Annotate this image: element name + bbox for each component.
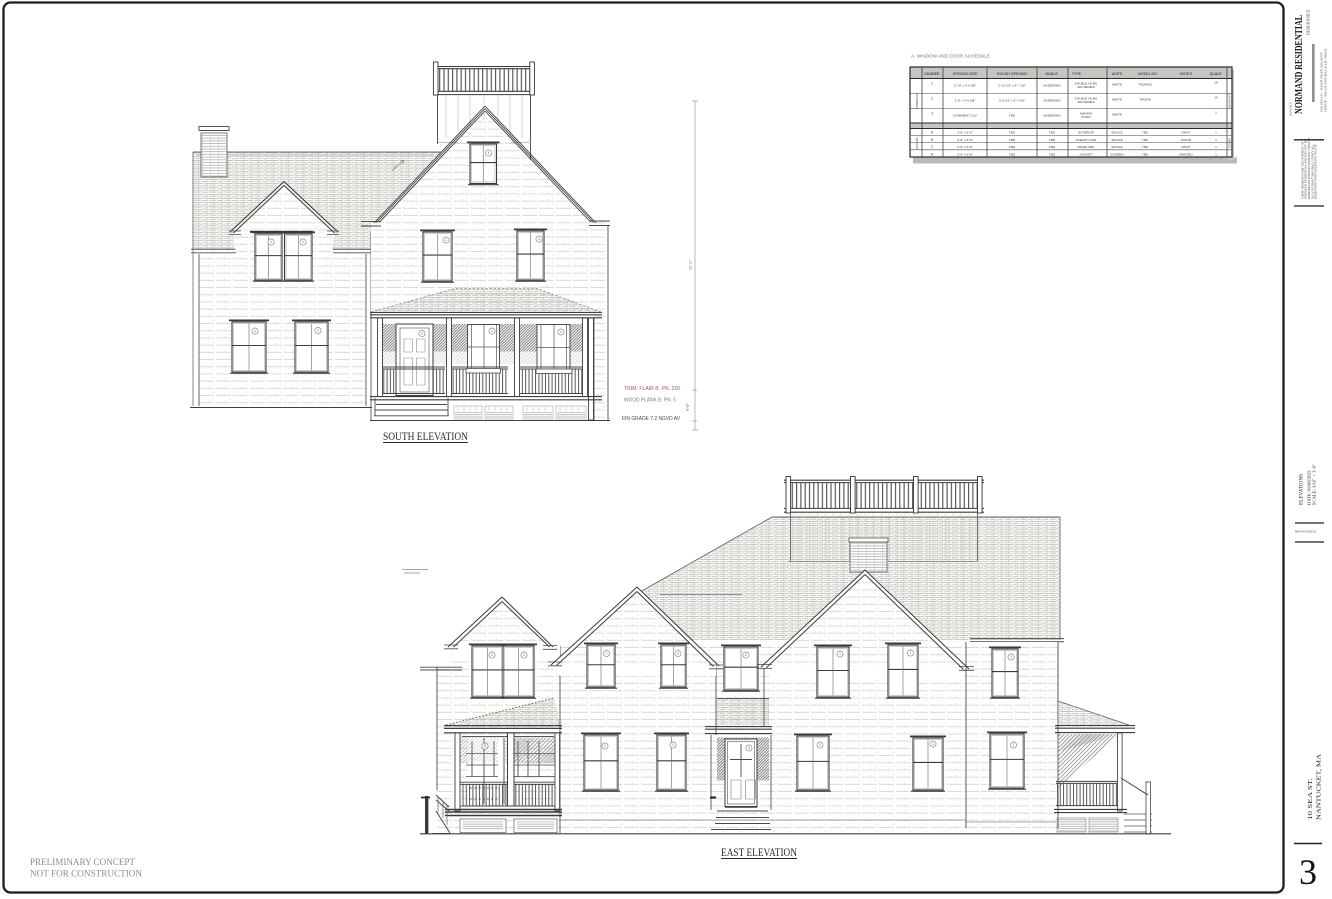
svg-text:NUMBER: NUMBER (924, 72, 940, 76)
svg-text:SCALE: 3/16″ = 1′-0″: SCALE: 3/16″ = 1′-0″ (1312, 464, 1317, 505)
svg-text:3'-0" x 6'-8": 3'-0" x 6'-8" (957, 131, 973, 135)
svg-text:TBD: TBD (1049, 138, 1056, 142)
svg-text:2: 2 (931, 97, 933, 101)
svg-text:1: 1 (1215, 138, 1217, 142)
svg-text:NOTES: NOTES (1180, 72, 1193, 76)
svg-text:D: D (484, 744, 487, 748)
svg-text:TBD: TBD (1009, 145, 1016, 149)
svg-text:TRIM: FLAIR B. PN. 220: TRIM: FLAIR B. PN. 220 (624, 386, 680, 392)
svg-text:1: 1 (1215, 152, 1217, 156)
svg-text:UNITS: UNITS (1112, 72, 1123, 76)
svg-text:2'-4" x 6'-8": 2'-4" x 6'-8" (957, 152, 973, 156)
svg-text:1: 1 (254, 329, 256, 333)
svg-text:3: 3 (1299, 852, 1317, 892)
svg-text:TBD: TBD (1142, 152, 1149, 156)
svg-text:2'-8" x 6'-8": 2'-8" x 6'-8" (957, 138, 973, 142)
svg-text:QUANT.: QUANT. (1210, 72, 1223, 76)
svg-text:MODEL NO.: MODEL NO. (1138, 72, 1158, 76)
svg-text:POCKET: POCKET (1080, 152, 1093, 156)
svg-text:1: 1 (270, 240, 272, 244)
svg-text:400 SERIES: 400 SERIES (1077, 100, 1094, 104)
svg-text:1: 1 (672, 743, 674, 747)
svg-text:1: 1 (604, 744, 606, 748)
svg-text:1: 1 (1215, 145, 1217, 149)
svg-text:PRELIMINARY CONCEPT: PRELIMINARY CONCEPT (30, 857, 135, 868)
svg-text:DESIGN BUILD: DESIGN BUILD (1307, 10, 1311, 35)
svg-text:4: 4 (488, 151, 490, 155)
svg-text:NOT FOR CONSTRUCTION: NOT FOR CONSTRUCTION (30, 869, 142, 880)
svg-text:WINDOWS: WINDOWS (1228, 93, 1232, 108)
svg-text:10: 10 (1214, 96, 1218, 100)
svg-text:FIN GRADE 7.2 NGVD AV: FIN GRADE 7.2 NGVD AV (622, 416, 680, 422)
svg-text:EAST ELEVATION: EAST ELEVATION (721, 847, 798, 859)
svg-text:3: 3 (931, 112, 933, 116)
svg-text:PAINT: PAINT (1182, 131, 1191, 135)
svg-text:RFP 4/5/AD/23: RFP 4/5/AD/23 (1295, 530, 1317, 534)
svg-text:NORMAND RESIDENTIAL: NORMAND RESIDENTIAL (1293, 15, 1305, 114)
svg-text:2'-6" x 6'-8": 2'-6" x 6'-8" (957, 145, 973, 149)
svg-text:PAINT: PAINT (1182, 145, 1191, 149)
svg-text:ROUGH OPENING: ROUGH OPENING (997, 72, 1027, 76)
svg-text:1: 1 (538, 237, 540, 241)
svg-text:SOUTH ELEVATION: SOUTH ELEVATION (383, 429, 468, 443)
svg-text:2: 2 (745, 653, 747, 657)
svg-text:9′-6″: 9′-6″ (685, 403, 690, 411)
svg-text:TBD: TBD (1049, 145, 1056, 149)
svg-text:1: 1 (910, 651, 912, 655)
svg-text:WOOD PLANK B. PN. 5: WOOD PLANK B. PN. 5 (624, 398, 676, 404)
svg-text:WHITE: WHITE (1112, 98, 1122, 102)
svg-text:1: 1 (819, 743, 821, 747)
svg-text:EXTERIOR: EXTERIOR (1078, 131, 1095, 135)
svg-text:1: 1 (560, 330, 562, 334)
svg-text:12: 12 (393, 165, 397, 169)
svg-text:SINGLE: SINGLE (1111, 145, 1122, 149)
svg-text:3: 3 (748, 746, 750, 750)
svg-text:SINGLE: SINGLE (1111, 131, 1122, 135)
svg-text:DOORS: DOORS (1228, 138, 1232, 149)
svg-text:TBD: TBD (1142, 138, 1149, 142)
svg-text:2: 2 (677, 652, 679, 656)
svg-text:1: 1 (932, 742, 934, 746)
svg-text:TBD: TBD (1142, 145, 1149, 149)
svg-text:FIXED: FIXED (1081, 115, 1091, 119)
svg-text:1: 1 (445, 238, 447, 242)
svg-text:WINDOWS: WINDOWS (915, 93, 919, 110)
svg-text:TYPE: TYPE (1072, 72, 1082, 76)
svg-text:TBD: TBD (1009, 138, 1016, 142)
svg-text:FRENCH PAIR: FRENCH PAIR (1076, 138, 1098, 142)
svg-text:TBD: TBD (1009, 114, 1016, 118)
svg-text:KINSALE: KINSALE (1289, 102, 1293, 116)
svg-text:TBD: TBD (1049, 131, 1056, 135)
svg-text:2'-6" x 3'-6 5/8": 2'-6" x 3'-6 5/8" (955, 99, 976, 103)
svg-text:1: 1 (491, 329, 493, 333)
svg-text:400 SERIES: 400 SERIES (1077, 85, 1094, 89)
svg-text:28: 28 (1214, 81, 1218, 85)
svg-text:1: 1 (302, 240, 304, 244)
svg-text:NANTUCKET, MA: NANTUCKET, MA (1316, 754, 1323, 820)
svg-text:WHITE: WHITE (1112, 113, 1122, 117)
svg-text:ELEVATIONS: ELEVATIONS (1299, 474, 1305, 505)
svg-text:TBD: TBD (1009, 152, 1016, 156)
svg-text:1: 1 (1013, 743, 1015, 747)
svg-text:OPENING SIZE: OPENING SIZE (953, 72, 979, 76)
svg-text:TBD: TBD (1142, 131, 1149, 135)
svg-text:DOORS: DOORS (915, 137, 919, 149)
svg-text:ANDERSEN: ANDERSEN (1043, 99, 1060, 103)
svg-text:2: 2 (421, 332, 423, 336)
svg-text:TW24410: TW24410 (1138, 83, 1152, 87)
svg-text:2'-6 1/2" x 3'-7 1/8": 2'-6 1/2" x 3'-7 1/8" (999, 99, 1025, 103)
svg-text:2: 2 (1215, 111, 1217, 115)
svg-text:ANDERSEN: ANDERSEN (1043, 84, 1060, 88)
svg-text:1: 1 (1215, 131, 1217, 135)
svg-text:MANUF.: MANUF. (1045, 72, 1058, 76)
svg-text:ANDERSEN: ANDERSEN (1043, 114, 1060, 118)
svg-text:32′-6″: 32′-6″ (688, 259, 693, 270)
svg-text:CASEMENT 2'x3': CASEMENT 2'x3' (953, 114, 978, 118)
svg-text:1: 1 (1010, 655, 1012, 659)
svg-text:TBD: TBD (1049, 152, 1056, 156)
svg-text:2: 2 (606, 652, 608, 656)
svg-text:1: 1 (317, 329, 319, 333)
svg-text:1: 1 (931, 82, 933, 86)
svg-text:OFFICE - 508.228.4342 MA CS L: OFFICE - 508.228.4342 MA CS LIC 100232 (1324, 48, 1328, 112)
svg-text:TW2436: TW2436 (1139, 98, 1151, 102)
svg-text:SCREEN: SCREEN (1111, 152, 1124, 156)
svg-text:WOOD: WOOD (1181, 138, 1192, 142)
svg-text:DIMENSIONS AND CONDITIONS ON S: DIMENSIONS AND CONDITIONS ON SITE (1314, 144, 1318, 199)
svg-text:1: 1 (523, 653, 525, 657)
svg-text:2'-10 1/2" x 4'-7 1/8": 2'-10 1/2" x 4'-7 1/8" (998, 84, 1026, 88)
svg-text:10 SEA ST.: 10 SEA ST. (1307, 778, 1314, 820)
svg-text:PANEL DBL: PANEL DBL (1078, 145, 1095, 149)
svg-text:PAINTED: PAINTED (1179, 152, 1193, 156)
svg-text:WHITE: WHITE (1112, 83, 1122, 87)
svg-text:SINGLE: SINGLE (1111, 138, 1122, 142)
svg-text:1: 1 (491, 653, 493, 657)
svg-text:1: 1 (839, 652, 841, 656)
svg-text:2'-10" x 4'-6 5/8": 2'-10" x 4'-6 5/8" (954, 84, 976, 88)
svg-text:A. WINDOW AND DOOR SCHEDULE: A. WINDOW AND DOOR SCHEDULE (911, 54, 990, 59)
svg-text:TBD: TBD (1009, 131, 1016, 135)
